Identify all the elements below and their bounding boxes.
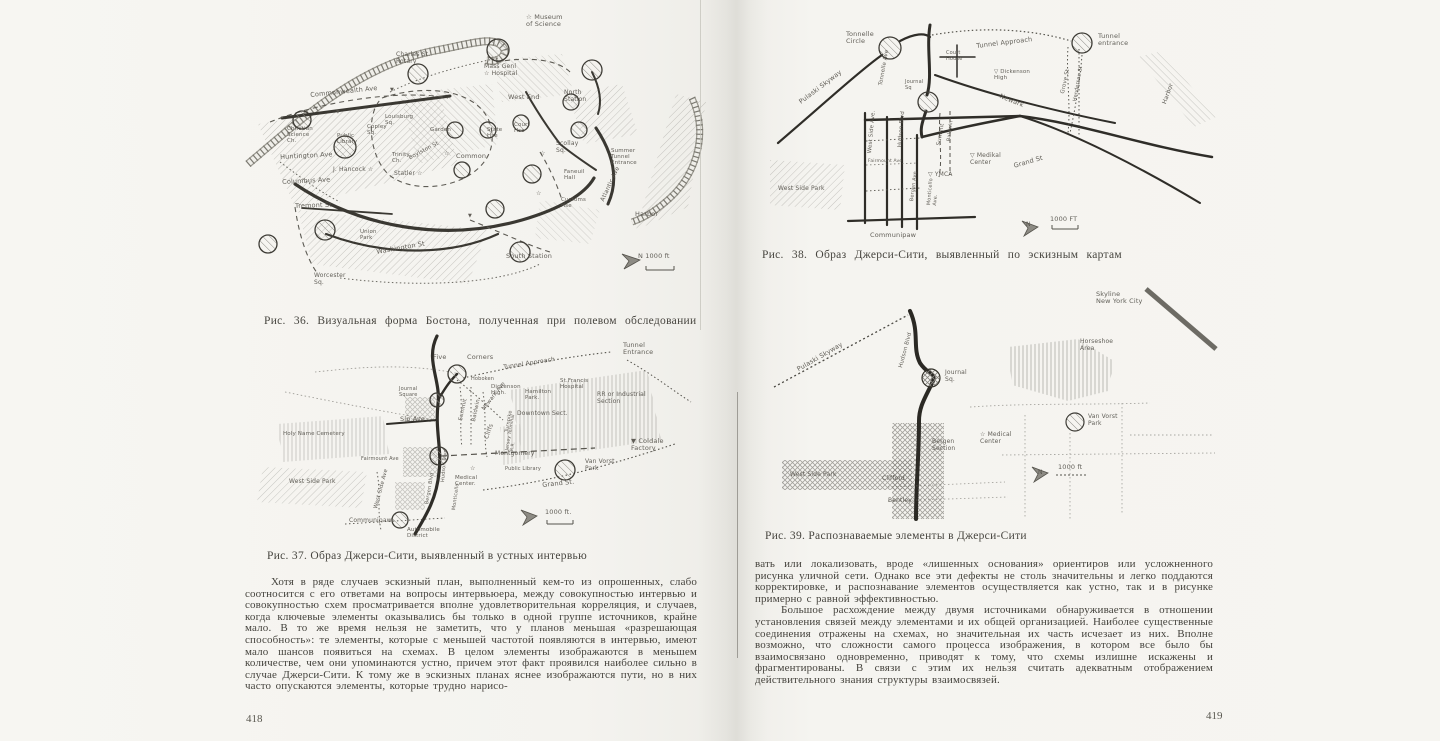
map-label: N [1038,470,1043,477]
map-label: North Station [564,90,586,103]
figure-38-caption: Рис. 38. Образ Джерси-Сити, выявленный п… [762,249,1122,261]
figure-39-caption: Рис. 39. Распознаваемые элементы в Джерс… [765,530,1027,542]
map-label: Union Park [360,229,377,241]
map-label: Journal Sq. [945,370,967,383]
left-page: ☆ Museum of ScienceCharles St. RotaryMas… [0,0,728,741]
map-label: Fairmount Ave [868,159,902,164]
map-label: ▼ [390,88,394,94]
map-label: Tonnelle Circle [846,31,874,46]
paragraph: Хотя в ряде случаев эскизный план, выпол… [245,577,697,693]
map-label: Common [456,153,486,160]
map-label: Worcester Sq. [314,273,346,286]
map-label: Monticello Ave. [927,178,941,206]
figure-39-jersey-city-elements-map: Skyline New York CityPulaski SkywayHudso… [770,285,1220,525]
map-label: ▼ [336,110,340,116]
paragraph: вать или локализовать, вроде «лишенных о… [755,559,1213,605]
map-label: Christian Science Ch. [287,126,313,144]
map-label: Sip Ave [400,416,425,423]
map-label: Tremont St [295,202,332,211]
map-label: Scollay Sq. [556,141,578,154]
map-label: ▼ [468,214,472,220]
map-label: Van Vorst Park [585,459,615,472]
map-label: ▼ Coldale Factory [631,438,664,453]
right-page-body-text: вать или локализовать, вроде «лишенных о… [755,559,1213,714]
map-label: Statler ☆ [394,171,423,178]
map-label: 1000 ft [1058,464,1082,471]
map-label: ☆ [444,151,450,158]
map-label: Public Library [505,467,541,473]
binding-gutter-line [737,392,738,658]
map-label: Skyline New York City [1096,291,1143,306]
map-label: Fairmount Ave [361,457,399,463]
map-label: ☆ Museum of Science [526,14,563,29]
map-label: West Side Park [790,472,837,479]
map-label: Louisburg Sq. [385,114,413,126]
right-page-number: 419 [1206,710,1223,722]
right-page: Tonnelle CirclePulaski SkywayTonnelle Av… [728,0,1440,741]
map-label: J. Hancock ☆ [333,167,373,174]
map-label: Tunnel entrance [1098,33,1128,48]
map-label: Hamilton Park. [525,389,551,401]
map-label: Trinity Ch. [392,152,410,164]
map-label: Charles St. Rotary [396,52,430,65]
figure-37-caption: Рис. 37. Образ Джерси-Сити, выявленный в… [267,550,587,562]
map-label: Bergen Section [932,439,955,452]
map-label: Public Library [337,133,357,145]
map-label: Journal Sq [905,80,923,91]
map-label: Court House [946,51,962,62]
paragraph: Большое расхождение между двумя источник… [755,605,1213,686]
map-label: ▽ Medikal Center [970,153,1001,166]
map-label: Medical Center. [455,475,477,487]
map-label: Copley Sq. [367,124,387,136]
map-label: RR or Industrial Section [597,392,646,405]
map-label: ☆ [540,151,546,158]
map-label: Clifford [882,476,905,483]
map-label: Garden [430,127,451,133]
map-label: Summer Tunnel Entrance [611,148,637,166]
page-edge-line [700,0,701,330]
map-label: Montgomery [495,451,535,458]
map-label: West Side Park [289,479,336,486]
jersey-city-elements-drawing [770,285,1220,525]
map-label: Faneuil Hall [564,169,585,181]
left-page-body-text: Хотя в ряде случаев эскизный план, выпол… [245,577,697,715]
map-label: Automobile District [407,527,440,539]
figure-36-boston-map: ☆ Museum of ScienceCharles St. RotaryMas… [240,2,710,312]
map-label: St.Francis Hospital [560,378,588,390]
map-label: Corners [467,354,493,361]
map-label: Downtown Sect. [517,411,568,418]
map-label: Journal Square [399,387,418,398]
map-label: Mass Genl ☆ Hospital [484,64,517,77]
map-label: N 1000 ft [638,253,670,260]
map-label: Van Vorst Park [1088,414,1118,427]
map-label: Customs Hse [561,197,586,209]
figure-36-caption: Рис. 36. Визуальная форма Бостона, получ… [264,315,696,327]
map-label: ☆ Medical Center [980,432,1012,445]
figure-38-jersey-city-sketch-map: Tonnelle CirclePulaski SkywayTonnelle Av… [770,5,1220,250]
map-label: Horseshoe Area [1080,339,1113,352]
map-label: ☆ [470,466,476,473]
map-label: Hoboken [471,377,494,383]
map-label: 1000 FT [1050,216,1077,223]
map-label: Five [433,354,447,361]
figure-37-jersey-city-map: FiveCornersTunnel ApproachTunnel Entranc… [255,332,710,547]
map-label: Communipaw [349,518,392,525]
map-label: South Station [506,253,552,260]
map-label: ▽ Dickenson High [994,69,1030,81]
map-label: State Hse [487,127,502,139]
map-label: 1000 ft. [545,509,572,516]
map-label: ☆ [536,191,542,198]
left-page-number: 418 [246,713,263,725]
map-label: Holy Name Cemetery [283,431,345,437]
book-scan: ☆ Museum of ScienceCharles St. RotaryMas… [0,0,1440,741]
map-label: Communipaw [870,232,916,239]
map-label: Bentley [888,498,912,505]
map-label: Tunnel Entrance [623,342,653,357]
map-label: N [1026,222,1031,229]
map-label: Court Hse [514,122,530,134]
map-label: West End [508,94,540,101]
map-label: Harbor [635,211,658,218]
map-label: West Side Park [778,186,825,193]
